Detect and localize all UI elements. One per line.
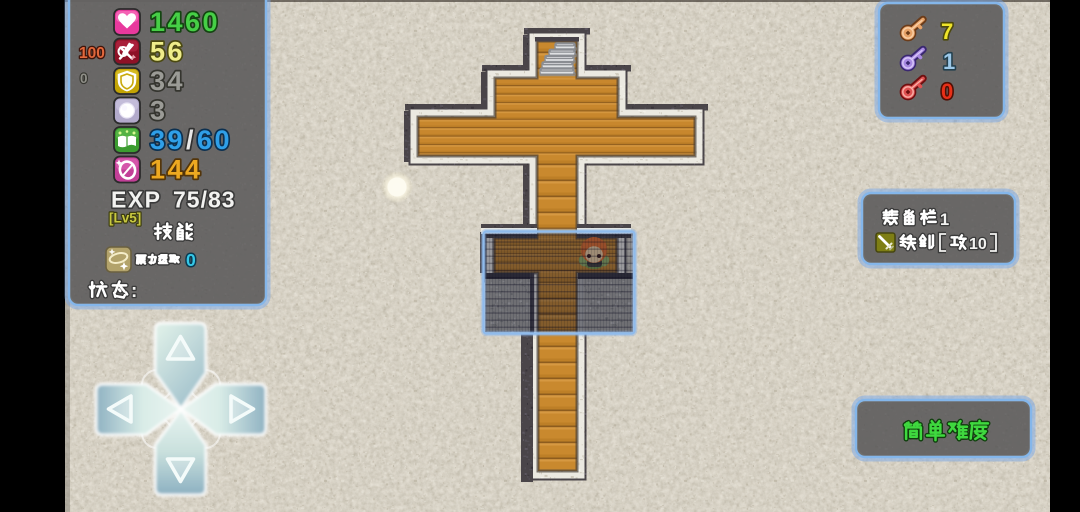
svg-text:[Lv5]: [Lv5] <box>109 211 141 226</box>
svg-text:144: 144 <box>150 155 203 185</box>
svg-text:34: 34 <box>150 66 185 96</box>
svg-text:7: 7 <box>941 19 953 44</box>
svg-text:3: 3 <box>150 96 168 126</box>
svg-text:1: 1 <box>940 211 949 229</box>
svg-text::: : <box>131 281 137 302</box>
svg-text:0: 0 <box>941 79 953 104</box>
svg-text:75/83: 75/83 <box>173 187 236 213</box>
svg-text:10: 10 <box>969 236 987 253</box>
svg-text:1: 1 <box>943 49 955 74</box>
svg-text:1460: 1460 <box>150 7 220 37</box>
svg-text:0: 0 <box>80 71 88 86</box>
svg-text:100: 100 <box>79 45 105 62</box>
svg-text:39: 39 <box>150 125 185 155</box>
svg-text:0: 0 <box>186 250 196 270</box>
svg-text:/: / <box>186 125 194 155</box>
svg-text:EXP: EXP <box>111 187 162 213</box>
svg-text:56: 56 <box>150 37 185 67</box>
svg-text:60: 60 <box>197 125 232 155</box>
